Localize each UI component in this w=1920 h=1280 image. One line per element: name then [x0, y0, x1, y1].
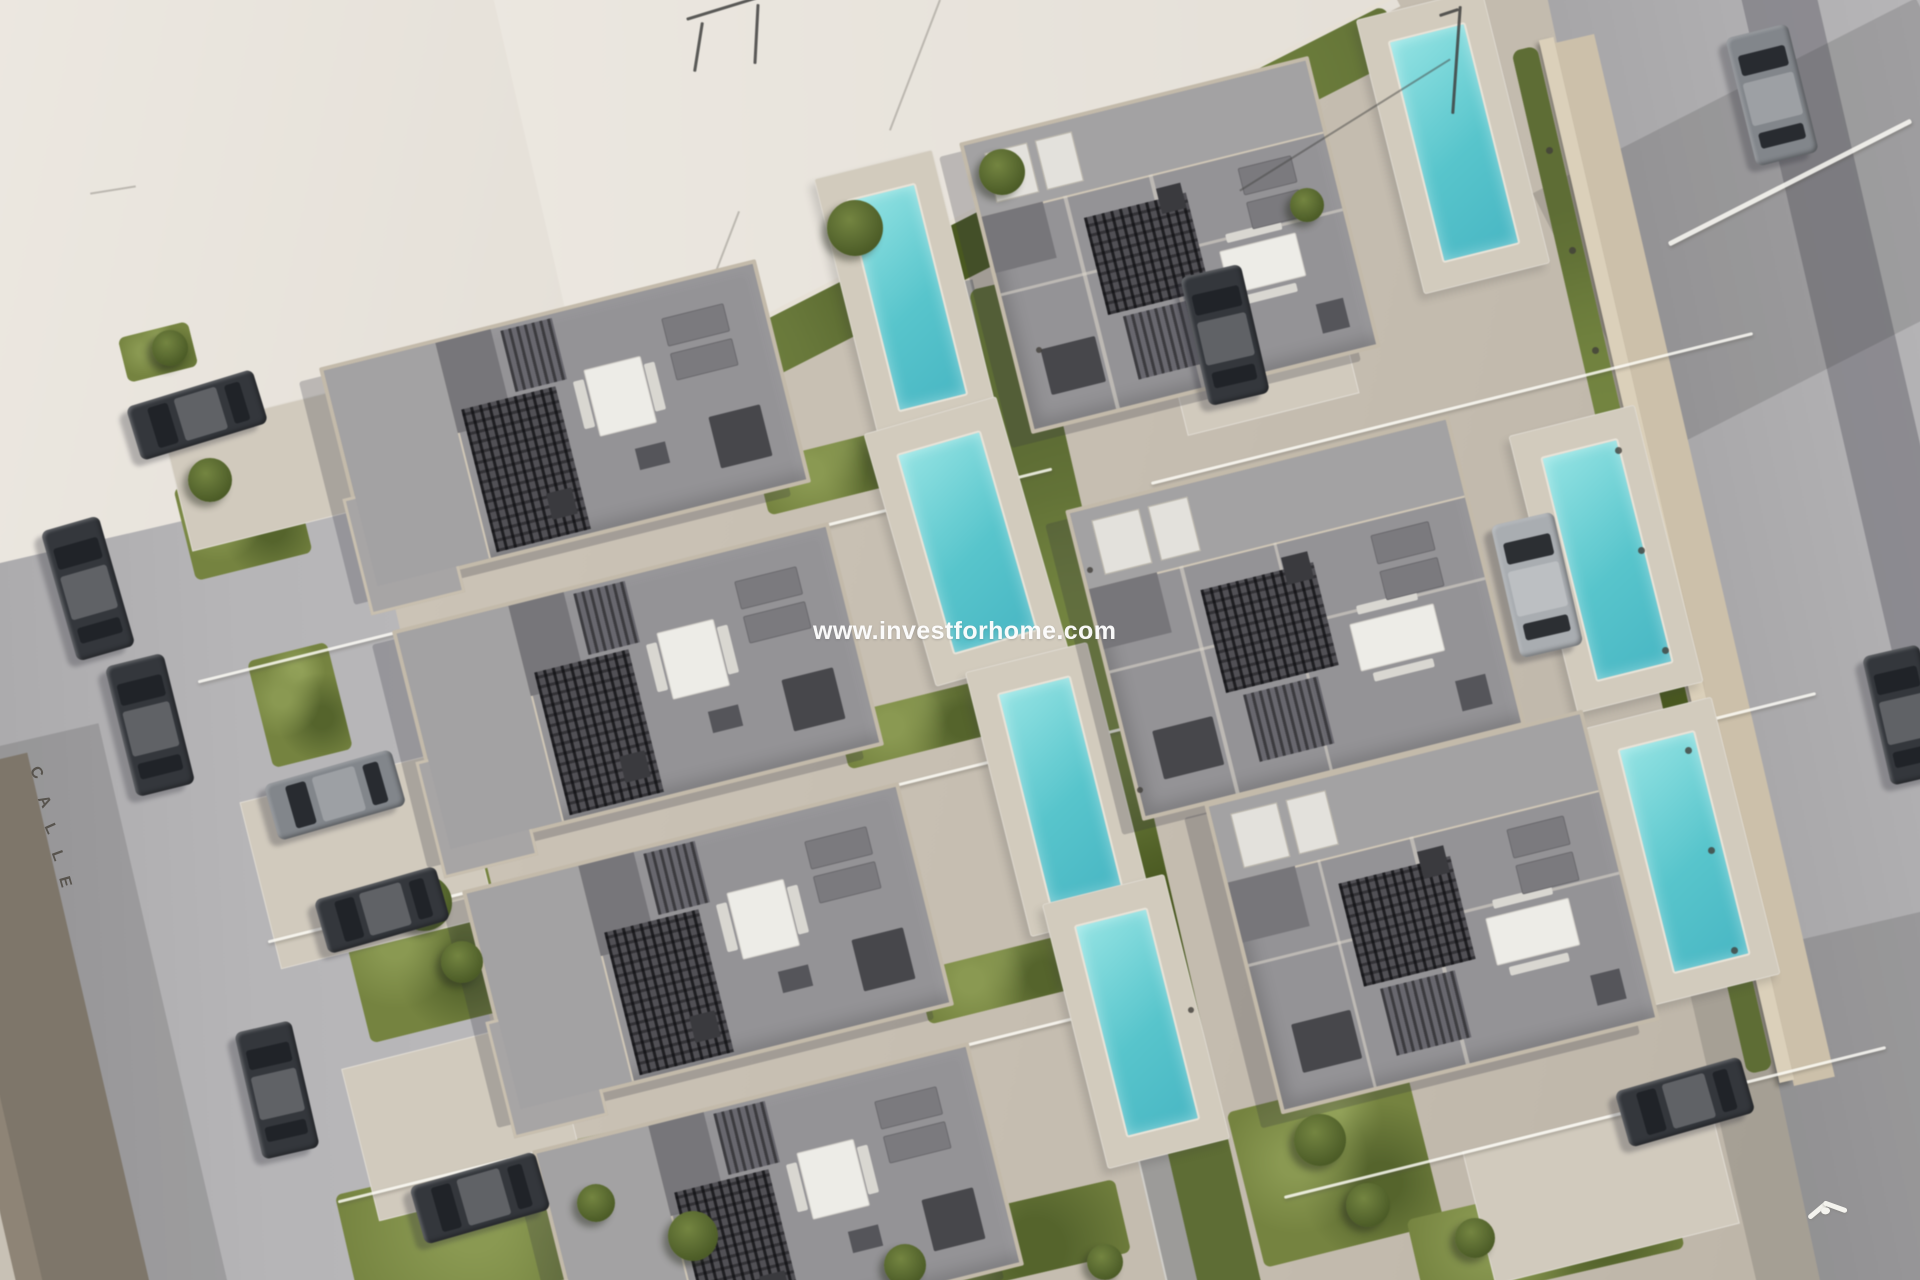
- bollard: [1087, 567, 1093, 573]
- car-detail: [362, 761, 389, 805]
- bollard: [1137, 787, 1143, 793]
- bollard: [1685, 747, 1692, 754]
- car-detail: [1635, 1088, 1667, 1136]
- car-detail: [147, 402, 180, 449]
- car-detail: [430, 1183, 463, 1233]
- tree: [1455, 1218, 1495, 1258]
- tree: [884, 1244, 926, 1280]
- bollard: [1708, 847, 1715, 854]
- roof-pergola-small: [574, 581, 640, 654]
- roof-pergola-small: [714, 1101, 780, 1174]
- roof-sofa: [1291, 1010, 1362, 1073]
- car-detail: [1743, 71, 1804, 127]
- roof-lounger: [1515, 851, 1580, 895]
- car-detail: [122, 701, 180, 757]
- bollard: [1615, 447, 1622, 454]
- car-detail: [1661, 1073, 1716, 1130]
- roof-pergola-small: [1380, 971, 1471, 1056]
- roof-sofa: [1040, 336, 1106, 395]
- car-detail: [1503, 533, 1555, 565]
- roof-lounger: [1506, 815, 1571, 859]
- car-detail: [60, 563, 119, 620]
- watermark-text: www.investforhome.com: [813, 617, 1116, 646]
- tree: [441, 941, 483, 983]
- car-detail: [359, 882, 413, 937]
- tree: [668, 1211, 718, 1261]
- car-detail: [1878, 692, 1920, 746]
- tree: [979, 149, 1025, 195]
- car-detail: [456, 1168, 512, 1226]
- roof-unit: [708, 704, 743, 733]
- bollard: [1188, 1007, 1194, 1013]
- car-detail: [137, 754, 183, 780]
- car-detail: [224, 381, 251, 424]
- car-detail: [285, 781, 317, 829]
- car-detail: [117, 674, 166, 706]
- roof-lounger: [813, 861, 882, 904]
- roof-sofa: [782, 667, 846, 732]
- bollard: [1569, 247, 1576, 254]
- roof-unit: [1454, 674, 1492, 712]
- car-detail: [408, 877, 434, 920]
- roof-unit: [848, 1224, 883, 1253]
- roof-sofa: [852, 927, 916, 992]
- car-detail: [1211, 363, 1258, 388]
- tree: [1294, 1114, 1346, 1166]
- car-detail: [53, 536, 103, 569]
- car-detail: [311, 765, 367, 822]
- car-detail: [1508, 561, 1568, 618]
- roof-sofa: [1152, 716, 1224, 779]
- tree: [1290, 188, 1324, 222]
- car-detail: [1197, 311, 1255, 366]
- car-detail: [334, 896, 365, 942]
- roof-unit: [778, 964, 813, 993]
- car-detail: [1758, 123, 1807, 150]
- roof-lounger: [1379, 557, 1445, 601]
- roof-sofa: [709, 404, 773, 469]
- roof-lounger: [883, 1121, 952, 1164]
- tree: [152, 330, 188, 366]
- tree: [1346, 1183, 1390, 1227]
- car-detail: [507, 1164, 534, 1210]
- bollard: [1731, 947, 1738, 954]
- roof-pergola-small: [644, 841, 710, 914]
- bird-icon: [1804, 1190, 1854, 1231]
- bollard: [1546, 147, 1553, 154]
- car-detail: [245, 1041, 293, 1071]
- car-detail: [77, 616, 123, 643]
- roof-sofa: [922, 1187, 986, 1252]
- bollard: [1662, 647, 1669, 654]
- roof-unit: [1590, 968, 1627, 1006]
- roof-lounger: [743, 601, 812, 644]
- aerial-render: CALLE www.investforhome.com: [0, 0, 1920, 1280]
- car-detail: [1712, 1068, 1738, 1112]
- tree: [188, 458, 232, 502]
- tree: [577, 1184, 615, 1222]
- car-detail: [1522, 614, 1571, 640]
- car-detail: [250, 1067, 305, 1120]
- car-detail: [173, 386, 229, 442]
- roof-pergola: [1200, 562, 1338, 693]
- roof-lounger: [1370, 520, 1436, 564]
- tree: [1087, 1244, 1123, 1280]
- roof-pergola: [1338, 856, 1475, 987]
- bollard: [1638, 547, 1645, 554]
- car-detail: [1873, 665, 1920, 695]
- roof-pergola-small: [501, 318, 567, 391]
- bollard: [1036, 347, 1042, 353]
- roof-unit: [635, 441, 670, 470]
- roof-lounger: [670, 338, 739, 381]
- car-detail: [1737, 44, 1789, 76]
- car-detail: [1892, 744, 1920, 769]
- roof-unit: [1316, 298, 1350, 333]
- tree: [827, 200, 883, 256]
- bollard: [1592, 347, 1599, 354]
- roof-pergola-small: [1242, 677, 1334, 762]
- car-detail: [1192, 285, 1243, 316]
- car-detail: [264, 1118, 308, 1143]
